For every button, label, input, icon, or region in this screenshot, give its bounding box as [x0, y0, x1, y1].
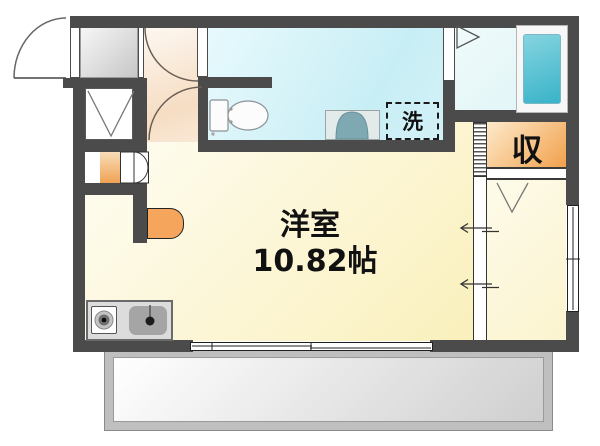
- wall: [566, 122, 579, 205]
- door-frame: [70, 27, 80, 78]
- door-frame: [138, 27, 144, 78]
- side-window: [567, 205, 579, 312]
- sliding-partition: [473, 177, 487, 341]
- wall: [70, 16, 579, 28]
- stove-burner: [91, 306, 117, 334]
- entry-genkan: [80, 27, 138, 78]
- wall: [73, 183, 147, 195]
- wall: [198, 140, 455, 152]
- door-frame: [443, 27, 455, 81]
- wall: [198, 88, 208, 142]
- washbasin: [325, 110, 380, 140]
- wall: [73, 340, 193, 352]
- wall: [198, 77, 272, 88]
- shoe-cabinet: [85, 88, 133, 140]
- wall: [133, 195, 147, 243]
- hallway: [143, 27, 198, 142]
- wall: [63, 78, 147, 88]
- wall: [566, 311, 579, 352]
- wall: [430, 340, 579, 352]
- kitchen-sink: [129, 306, 167, 335]
- entrance-door-arc: [14, 18, 66, 78]
- counter-shelf: [147, 208, 184, 239]
- washing-machine-space: 洗: [386, 102, 439, 140]
- floorplan: 洗 洋室 10.82帖 収: [0, 0, 600, 446]
- wall: [73, 140, 147, 152]
- closet-interior: [85, 152, 100, 183]
- bathtub-basin: [523, 34, 561, 104]
- accordion-door: [473, 122, 487, 177]
- closet-floor: [100, 152, 120, 183]
- sliding-window: [190, 342, 433, 351]
- balcony-floor: [113, 357, 544, 422]
- storage-label: 収: [489, 125, 565, 170]
- wall: [73, 78, 85, 352]
- main-room-area: 10.82帖: [225, 236, 405, 280]
- door-frame: [197, 27, 208, 77]
- washing-machine-label: 洗: [402, 106, 423, 136]
- wall: [133, 88, 147, 140]
